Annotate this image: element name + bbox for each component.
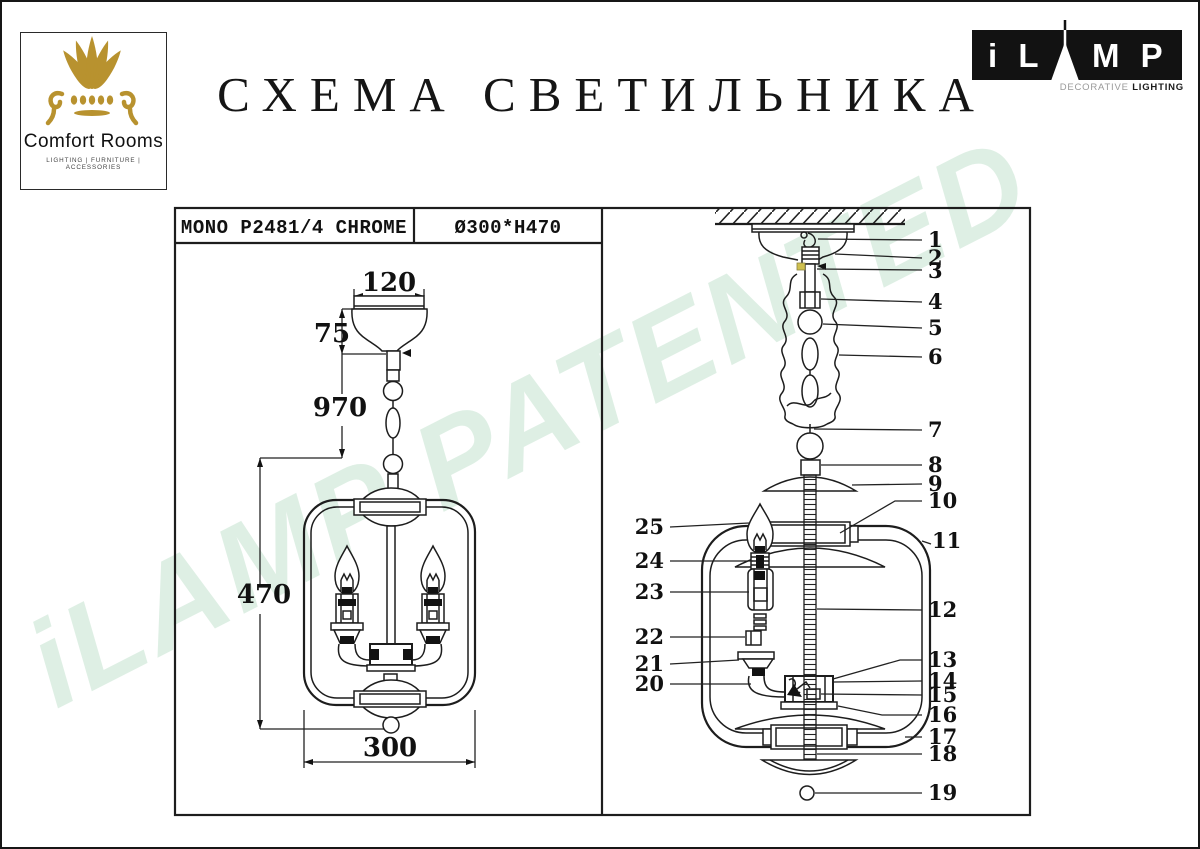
comfort-rooms-logo-box: Comfort Rooms LIGHTING | FURNITURE | ACC… <box>20 32 167 190</box>
lamp-schematic-drawing: MONO P2481/4 CHROME Ø300*H470 120 <box>2 2 1200 849</box>
canopy-exploded <box>752 224 854 292</box>
ilamp-letters-right: M P <box>1092 37 1169 74</box>
finial-ball <box>800 786 814 800</box>
ceiling-hatch <box>715 209 905 224</box>
candle-left <box>331 546 363 644</box>
callout-19: 19 <box>928 780 957 805</box>
dimension-120: 120 <box>354 268 424 299</box>
ilamp-tagline-light: DECORATIVE <box>1060 82 1133 93</box>
callout-23: 23 <box>635 579 664 604</box>
callout-18: 18 <box>928 741 957 766</box>
arm-exploded <box>748 676 785 697</box>
comfort-rooms-brand-name: Comfort Rooms <box>21 131 166 153</box>
callout-12: 12 <box>928 597 957 622</box>
callout-20: 20 <box>635 671 664 696</box>
ilamp-letters-left: i L <box>988 37 1045 74</box>
leader-lines <box>670 239 931 793</box>
right-panel-exploded-view: 1 2 3 4 5 6 7 8 9 10 11 12 13 14 15 16 1… <box>635 209 961 805</box>
canopy-left <box>352 296 427 370</box>
svg-text:75: 75 <box>314 319 350 349</box>
svg-text:300: 300 <box>363 733 417 763</box>
schematic-page: iLAMP PATENTED <box>0 0 1200 849</box>
candle-right <box>417 546 449 644</box>
callout-5: 5 <box>928 315 943 340</box>
callout-numbers-right: 1 2 3 4 5 6 7 8 9 10 11 12 13 14 15 16 1… <box>928 227 961 805</box>
svg-text:120: 120 <box>362 268 416 298</box>
ilamp-logo: i L M P <box>970 18 1186 90</box>
center-column-left <box>387 526 395 644</box>
hanging-chain-left <box>384 370 403 490</box>
hook-icon <box>801 232 807 238</box>
spec-model: MONO P2481/4 CHROME <box>181 217 407 239</box>
comfort-rooms-tagline: LIGHTING | FURNITURE | ACCESSORIES <box>21 157 166 171</box>
callout-3: 3 <box>928 258 943 283</box>
callout-4: 4 <box>928 289 943 314</box>
callout-6: 6 <box>928 344 943 369</box>
callout-numbers-left: 25 24 23 22 21 20 <box>635 514 664 696</box>
highlight-mark <box>797 263 805 270</box>
suspension-ring <box>797 424 823 475</box>
candle-exploded <box>747 504 773 630</box>
dimension-970: 970 <box>260 354 367 458</box>
ilamp-tagline: DECORATIVE LIGHTING <box>1042 82 1184 93</box>
bottom-bowl <box>762 760 856 775</box>
page-title: СХЕМА СВЕТИЛЬНИКА <box>202 66 1002 123</box>
ilamp-tagline-bold: LIGHTING <box>1132 82 1184 93</box>
spec-size: Ø300*H470 <box>454 217 561 239</box>
callout-22: 22 <box>635 624 664 649</box>
callout-11: 11 <box>932 528 961 553</box>
bobeche-cup <box>738 652 774 676</box>
callout-24: 24 <box>635 548 664 573</box>
callout-25: 25 <box>635 514 664 539</box>
top-finial-left <box>354 488 426 526</box>
svg-text:470: 470 <box>237 580 291 610</box>
svg-text:970: 970 <box>313 393 367 423</box>
bottom-finial-left <box>354 680 426 733</box>
callout-7: 7 <box>928 417 943 442</box>
threaded-rod <box>804 475 816 759</box>
drawing-frame <box>175 208 1030 815</box>
left-panel-dimension-drawing: 120 75 <box>237 268 475 768</box>
callout-10: 10 <box>928 488 957 513</box>
crown-icon <box>21 33 164 133</box>
decorative-chain-cover <box>780 274 840 428</box>
small-cylinder-part <box>746 631 761 645</box>
